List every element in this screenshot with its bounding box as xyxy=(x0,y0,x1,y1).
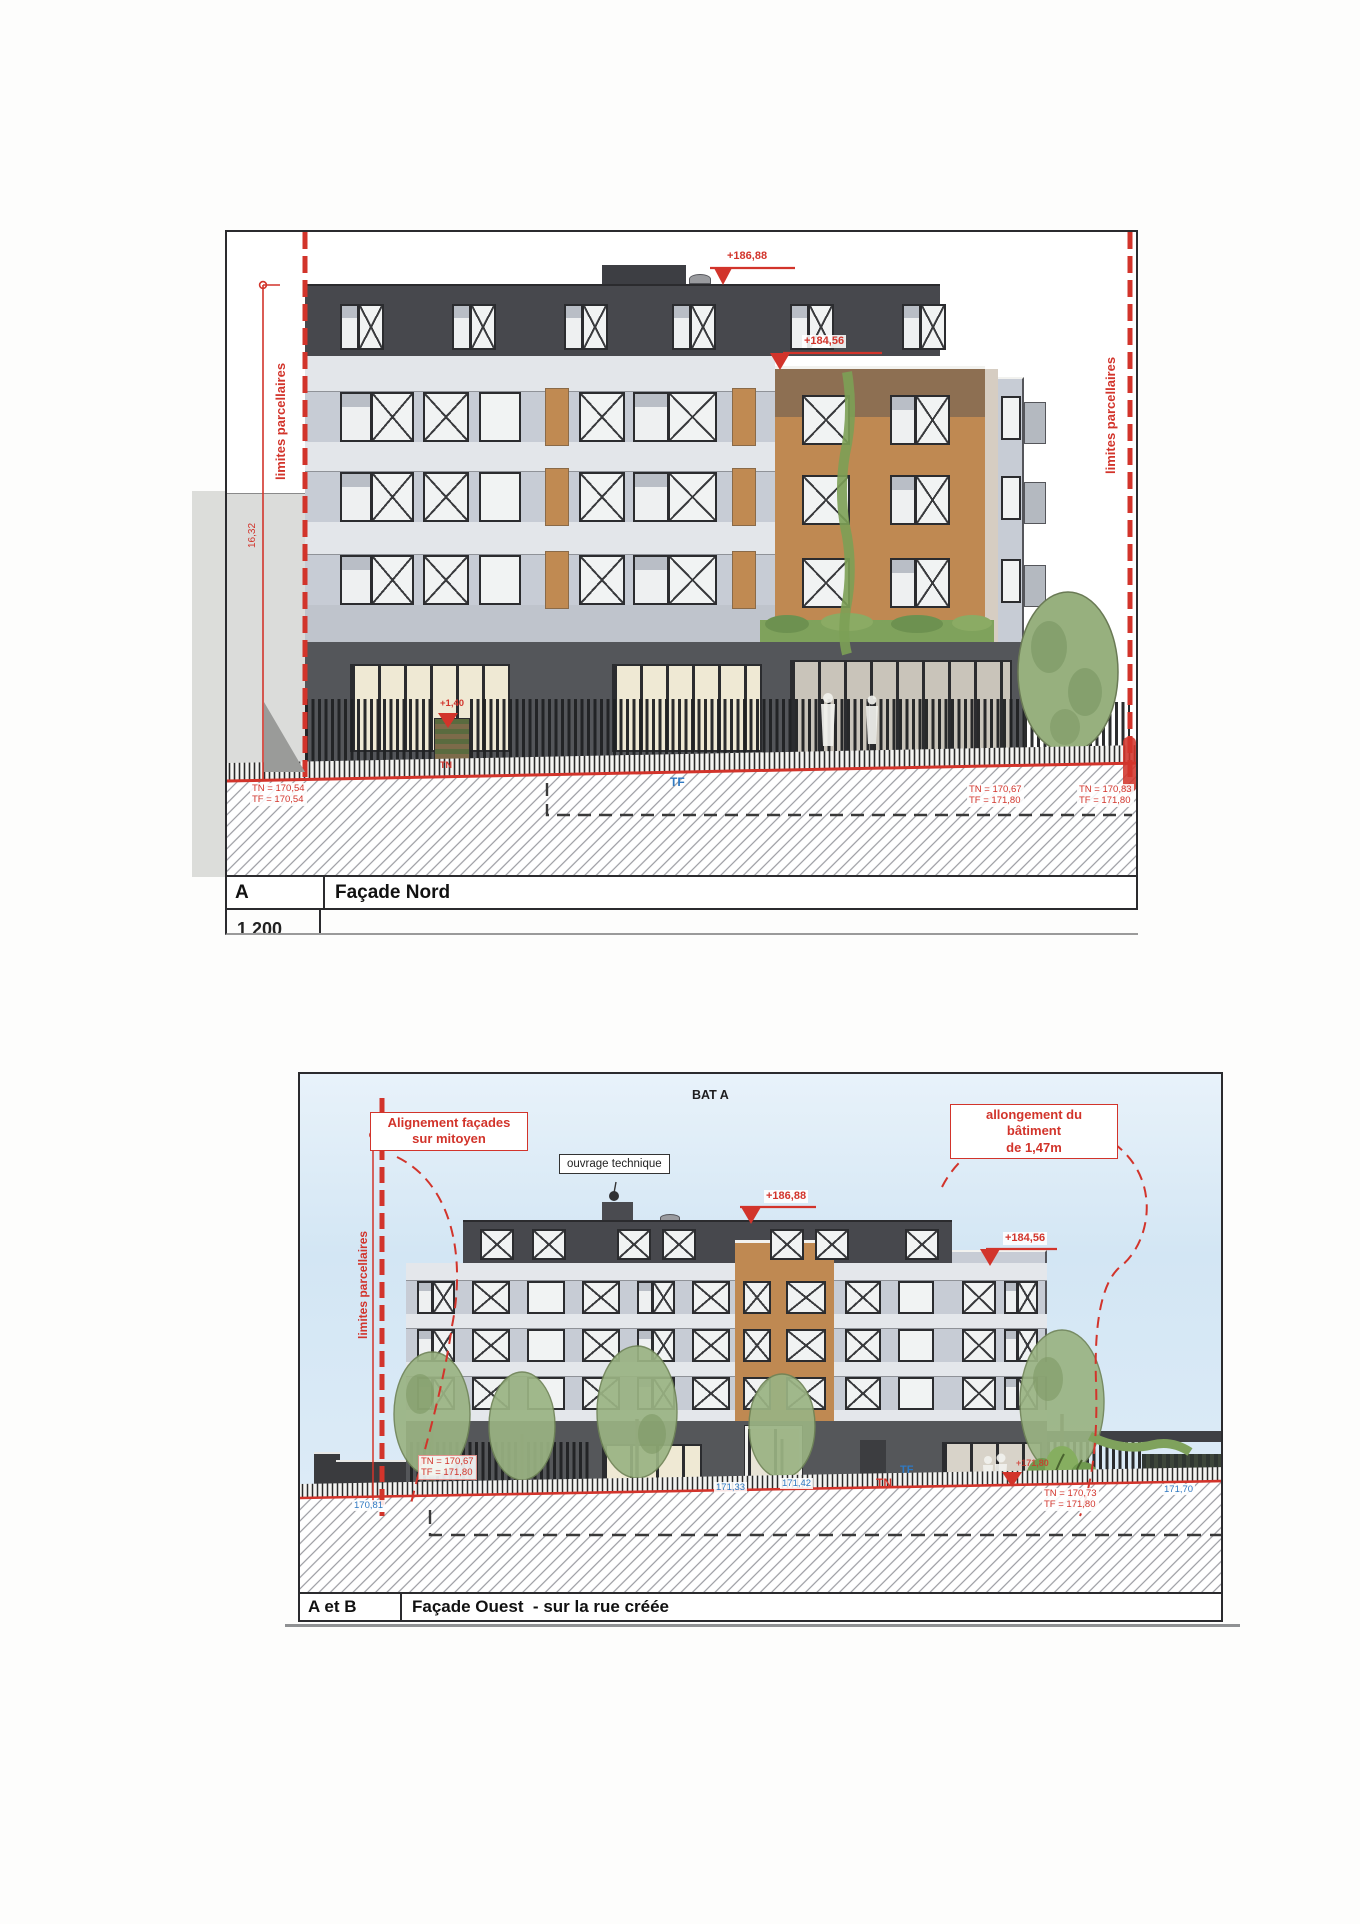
drawing-title: Façade Ouest - sur la rue créée xyxy=(402,1595,679,1619)
drawing-frame: BAT A Alignement façadessur mitoyen allo… xyxy=(298,1072,1223,1594)
elevation-north-drawing: limites parcellaires 16,32 limites parce… xyxy=(225,230,1138,935)
road-level-c2: 171,42 xyxy=(780,1478,813,1489)
access-ramp xyxy=(264,702,305,772)
antenna-ball xyxy=(609,1191,619,1201)
tn-label: TN xyxy=(876,1476,892,1490)
entry-level-value: +1,40 xyxy=(440,698,464,709)
callout-alignment: Alignement façadessur mitoyen xyxy=(370,1112,528,1151)
level-marker-wing xyxy=(980,1249,1057,1266)
drawing-title-bar: A et B Façade Ouest - sur la rue créée xyxy=(298,1592,1223,1622)
tn-tf-box-1: TN = 170,67TF = 171,80 xyxy=(418,1455,477,1480)
road-level-left: 170,81 xyxy=(352,1500,385,1511)
tn-tf-box-2: TN = 170,73TF = 171,80 xyxy=(1042,1488,1099,1511)
tn-tf-mid: TN = 170,67TF = 171,80 xyxy=(967,784,1024,807)
level-marker-entry xyxy=(438,713,458,728)
planter-hedge xyxy=(760,613,994,642)
road-level-right: 171,70 xyxy=(1162,1484,1195,1495)
drawing-key: A et B xyxy=(300,1595,400,1619)
annex-vines xyxy=(1090,1436,1190,1452)
scale-value: 1 200 xyxy=(237,919,282,935)
level-marker-wing xyxy=(770,353,882,370)
wing-level-value: +184,56 xyxy=(1003,1232,1047,1245)
drawing-key: A xyxy=(227,880,323,906)
entry-tn-label: TN xyxy=(440,760,452,770)
ouvrage-technique-box: ouvrage technique xyxy=(559,1154,670,1174)
scale-row-clipped: 1 200 xyxy=(225,910,1138,935)
height-dimension-label: 16,32 xyxy=(247,504,258,548)
climbing-vine xyxy=(842,372,850,654)
boundary-label-right: limites parcellaires xyxy=(1103,314,1118,474)
boundary-label-left: limites parcellaires xyxy=(273,320,288,480)
roof-level-value: +186,88 xyxy=(725,250,769,263)
hidden-level-value: +171,80 xyxy=(1016,1458,1049,1468)
level-marker-roof xyxy=(710,268,795,285)
roof-level-value: +186,88 xyxy=(764,1190,808,1203)
level-marker-roof xyxy=(740,1207,816,1224)
callout-extension: allongement dubâtimentde 1,47m xyxy=(950,1104,1118,1159)
people-silhouettes xyxy=(821,693,878,746)
scan-rule-line xyxy=(285,1624,1240,1627)
building-label: BAT A xyxy=(692,1088,729,1102)
page-gray-margin xyxy=(192,491,225,877)
drawing-title-bar: A Façade Nord xyxy=(225,875,1138,910)
tf-center-label: TF xyxy=(670,775,685,789)
elevation-west-drawing: BAT A Alignement façadessur mitoyen allo… xyxy=(298,1072,1223,1628)
drawing-title: Façade Nord xyxy=(325,880,460,906)
boundary-label-left: limites parcellaires xyxy=(356,1179,370,1339)
drawing-frame: limites parcellaires 16,32 limites parce… xyxy=(225,230,1138,877)
scanned-plan-page: limites parcellaires 16,32 limites parce… xyxy=(0,0,1360,1924)
road-level-c1: 171,33 xyxy=(714,1482,747,1493)
wing-level-value: +184,56 xyxy=(802,335,846,348)
tn-tf-right: TN = 170,83TF = 171,80 xyxy=(1077,784,1134,807)
tn-tf-left: TN = 170,54TF = 170,54 xyxy=(250,783,307,806)
tf-label: TF xyxy=(900,1464,913,1476)
